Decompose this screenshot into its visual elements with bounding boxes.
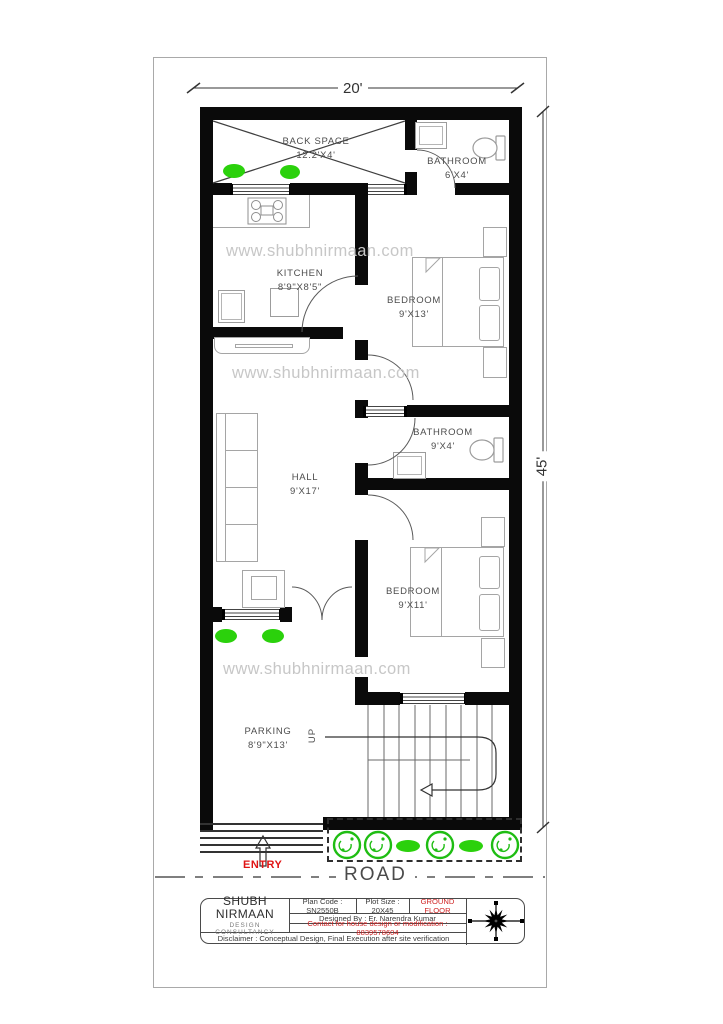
sofa-cushion-line [226, 524, 258, 525]
room-name: BACK SPACE [282, 135, 349, 149]
kitchen-sink [218, 290, 245, 323]
sideboard-detail [235, 344, 293, 348]
room-label-bathroom-mid: BATHROOM 9'X4' [383, 426, 503, 454]
room-label-bathroom-top: BATHROOM 6'X4' [407, 155, 507, 183]
room-name: PARKING [245, 725, 292, 739]
nightstand [483, 347, 507, 378]
room-name: BEDROOM [386, 585, 440, 599]
entry-gate [200, 823, 323, 854]
wall-segment [355, 340, 368, 360]
window [222, 609, 282, 620]
room-size: 9'X11' [398, 599, 427, 613]
window [400, 693, 467, 704]
room-name: KITCHEN [277, 267, 324, 281]
watermark: www.shubhnirmaan.com [223, 660, 411, 679]
wall-segment [455, 183, 509, 195]
wall-segment [509, 107, 522, 830]
room-size: 9'X17' [290, 485, 320, 499]
room-size: 8'9"X13' [248, 739, 288, 753]
nightstand [481, 638, 505, 668]
window [363, 184, 407, 195]
nightstand [481, 517, 505, 547]
watermark: www.shubhnirmaan.com [232, 364, 420, 383]
room-size: 12.2'X4' [296, 149, 335, 163]
pillow [479, 267, 500, 301]
pillow [479, 594, 500, 631]
height-dimension: 45' [533, 452, 550, 482]
wall-segment [200, 107, 522, 120]
room-name: BATHROOM [413, 426, 473, 440]
window [230, 184, 292, 195]
floor-name: GROUND FLOOR [409, 899, 466, 913]
compass-icon [467, 900, 525, 944]
disclaimer: Disclaimer : Conceptual Design, Final Ex… [201, 932, 466, 944]
entry-label: ENTRY [243, 859, 282, 871]
watermark: www.shubhnirmaan.com [226, 242, 414, 261]
kitchen-counter [213, 195, 310, 228]
sideboard [214, 337, 310, 354]
wall-segment [368, 478, 509, 490]
room-label-hall: HALL 9'X17' [245, 471, 365, 499]
room-name: HALL [292, 471, 319, 485]
room-label-back-space: BACK SPACE 12.2'X4' [246, 135, 386, 163]
company-cell: SHUBH NIRMAAN DESIGN CONSULTANCY [201, 899, 289, 932]
contact: Contact for house design or modification… [289, 923, 466, 932]
wall-segment [200, 107, 213, 830]
plan-code: Plan Code : SN2550B [289, 899, 356, 913]
armchair [242, 570, 285, 608]
bathroom-sink [393, 452, 426, 479]
room-name: BEDROOM [387, 294, 441, 308]
window [363, 406, 407, 417]
wall-segment [407, 405, 509, 417]
up-label: UP [307, 728, 318, 743]
room-label-kitchen: KITCHEN 8'9"X8'5" [240, 267, 360, 295]
wall-segment [355, 692, 400, 705]
wall-segment [213, 607, 222, 622]
room-label-bedroom-top: BEDROOM 9'X13' [354, 294, 474, 322]
room-size: 9'X13' [399, 308, 429, 322]
company-name: SHUBH NIRMAAN [201, 895, 289, 921]
nightstand [483, 227, 507, 257]
sofa-cushion-line [226, 450, 258, 451]
room-size: 6'X4' [445, 169, 469, 183]
room-name: BATHROOM [427, 155, 487, 169]
porch-planter-border [327, 818, 522, 862]
pillow [479, 305, 500, 341]
road-label: ROAD [336, 864, 415, 886]
floor-plan-page: 20' 45' www.shubhnirmaan.com www.shubhni… [0, 0, 723, 1024]
sink-basin [397, 456, 422, 475]
shower-tray [415, 122, 447, 149]
wall-segment [465, 692, 509, 705]
armchair-seat [251, 576, 277, 600]
shower-inner [419, 126, 443, 145]
wall-segment [290, 183, 360, 195]
divider [466, 899, 467, 945]
room-label-bedroom-bottom: BEDROOM 9'X11' [353, 585, 473, 613]
width-dimension: 20' [338, 80, 368, 97]
title-block: SHUBH NIRMAAN DESIGN CONSULTANCY Plan Co… [200, 898, 525, 944]
room-size: 9'X4' [431, 440, 455, 454]
room-size: 8'9"X8'5" [278, 281, 322, 295]
plot-size: Plot Size : 20X45 [356, 899, 409, 913]
wall-segment [280, 607, 292, 622]
pillow [479, 556, 500, 589]
sink-basin [221, 293, 242, 320]
